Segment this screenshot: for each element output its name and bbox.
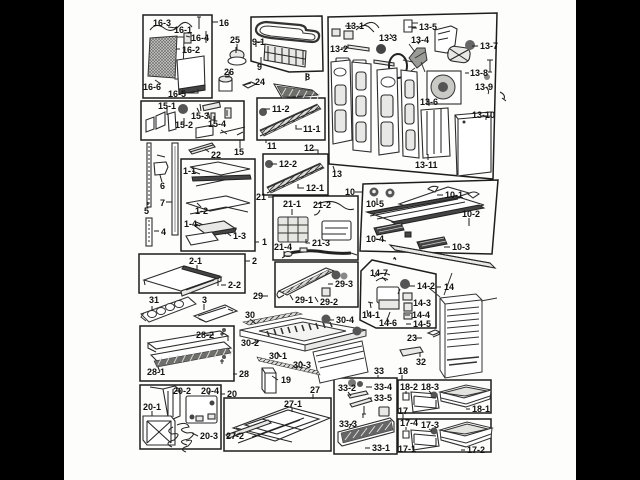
svg-text:20-4: 20-4 [201, 386, 219, 396]
svg-text:27-1: 27-1 [284, 399, 302, 409]
svg-text:19: 19 [281, 375, 291, 385]
svg-text:21-2: 21-2 [313, 200, 331, 210]
svg-text:13-2: 13-2 [330, 44, 348, 54]
svg-text:29-3: 29-3 [335, 279, 353, 289]
svg-text:22: 22 [211, 150, 221, 160]
svg-text:29-1: 29-1 [295, 295, 313, 305]
svg-text:1-4: 1-4 [184, 219, 197, 229]
svg-text:28-1: 28-1 [147, 367, 165, 377]
svg-text:12: 12 [304, 143, 314, 153]
svg-text:13-8: 13-8 [470, 68, 488, 78]
svg-text:33-2: 33-2 [338, 383, 356, 393]
svg-text:12-1: 12-1 [306, 183, 324, 193]
svg-text:5: 5 [144, 206, 149, 216]
svg-text:30-1: 30-1 [269, 351, 287, 361]
svg-text:13-1: 13-1 [346, 21, 364, 31]
svg-text:21: 21 [256, 192, 266, 202]
svg-text:1-3: 1-3 [233, 231, 246, 241]
svg-text:28: 28 [239, 369, 249, 379]
svg-text:33: 33 [374, 366, 384, 376]
svg-text:30: 30 [245, 310, 255, 320]
svg-text:14: 14 [444, 282, 454, 292]
svg-text:17-4: 17-4 [400, 418, 418, 428]
svg-text:21-4: 21-4 [274, 242, 292, 252]
svg-text:18-2: 18-2 [400, 382, 418, 392]
svg-text:1: 1 [262, 237, 267, 247]
svg-text:16-6: 16-6 [143, 82, 161, 92]
svg-text:29-2: 29-2 [320, 297, 338, 307]
svg-text:20-1: 20-1 [143, 402, 161, 412]
svg-text:18-3: 18-3 [421, 382, 439, 392]
svg-text:8: 8 [305, 72, 310, 82]
svg-text:10-3: 10-3 [452, 242, 470, 252]
svg-text:27-2: 27-2 [226, 431, 244, 441]
svg-text:15-4: 15-4 [208, 119, 226, 129]
svg-text:16: 16 [219, 18, 229, 28]
svg-text:17: 17 [398, 406, 408, 416]
svg-text:11-2: 11-2 [272, 104, 290, 114]
svg-text:16-2: 16-2 [182, 45, 200, 55]
svg-text:20-3: 20-3 [200, 431, 218, 441]
svg-text:15: 15 [234, 147, 244, 157]
svg-text:16-1: 16-1 [174, 25, 192, 35]
svg-text:21-3: 21-3 [312, 238, 330, 248]
svg-text:13-10: 13-10 [472, 110, 495, 120]
svg-text:15-3: 15-3 [191, 111, 209, 121]
svg-text:33-4: 33-4 [374, 382, 392, 392]
svg-text:24: 24 [255, 77, 265, 87]
svg-text:27: 27 [310, 385, 320, 395]
svg-text:30-2: 30-2 [241, 338, 259, 348]
svg-text:29: 29 [253, 291, 263, 301]
svg-text:18-1: 18-1 [472, 404, 490, 414]
svg-text:12-2: 12-2 [279, 159, 297, 169]
svg-text:13-6: 13-6 [420, 97, 438, 107]
svg-text:2: 2 [252, 256, 257, 266]
svg-text:20-2: 20-2 [173, 386, 191, 396]
svg-text:21-1: 21-1 [283, 199, 301, 209]
svg-text:15-1: 15-1 [158, 101, 176, 111]
svg-text:14-3: 14-3 [413, 298, 431, 308]
svg-text:4: 4 [161, 227, 166, 237]
svg-text:15-2: 15-2 [175, 120, 193, 130]
svg-text:13: 13 [332, 169, 342, 179]
svg-text:16-4: 16-4 [191, 33, 209, 43]
svg-text:11: 11 [267, 141, 277, 151]
svg-text:13-5: 13-5 [419, 22, 437, 32]
svg-text:7: 7 [160, 198, 165, 208]
svg-text:20: 20 [227, 389, 237, 399]
svg-text:30-4: 30-4 [336, 315, 354, 325]
svg-text:9: 9 [257, 62, 262, 72]
svg-text:14-5: 14-5 [413, 319, 431, 329]
svg-text:6: 6 [160, 181, 165, 191]
svg-text:16-3: 16-3 [153, 18, 171, 28]
svg-text:14-7: 14-7 [370, 268, 388, 278]
svg-text:13-7: 13-7 [480, 41, 498, 51]
svg-text:32: 32 [416, 357, 426, 367]
svg-text:10-1: 10-1 [445, 190, 463, 200]
svg-text:25: 25 [230, 35, 240, 45]
svg-text:14-1: 14-1 [362, 310, 380, 320]
svg-text:10-4: 10-4 [366, 234, 384, 244]
svg-text:17-2: 17-2 [467, 445, 485, 455]
svg-text:28-2: 28-2 [196, 330, 214, 340]
svg-text:26: 26 [224, 67, 234, 77]
svg-text:18: 18 [398, 366, 408, 376]
svg-text:2-1: 2-1 [189, 256, 202, 266]
svg-text:2-2: 2-2 [228, 280, 241, 290]
svg-text:10: 10 [345, 187, 355, 197]
svg-text:16-5: 16-5 [168, 89, 186, 99]
svg-text:17-3: 17-3 [421, 420, 439, 430]
svg-text:13-11: 13-11 [415, 160, 438, 170]
svg-text:30-3: 30-3 [293, 360, 311, 370]
svg-text:33-1: 33-1 [372, 443, 390, 453]
svg-text:9-1: 9-1 [252, 37, 265, 47]
svg-text:14-2: 14-2 [417, 281, 435, 291]
svg-text:3: 3 [202, 295, 207, 305]
svg-text:10-2: 10-2 [462, 209, 480, 219]
svg-text:1-2: 1-2 [195, 206, 208, 216]
svg-text:14-6: 14-6 [379, 318, 397, 328]
svg-text:1-1: 1-1 [183, 166, 196, 176]
svg-text:33-5: 33-5 [374, 393, 392, 403]
svg-text:33-3: 33-3 [339, 419, 357, 429]
svg-text:11-1: 11-1 [303, 124, 321, 134]
svg-text:31: 31 [149, 295, 159, 305]
svg-text:13-4: 13-4 [411, 35, 429, 45]
svg-text:17-1: 17-1 [398, 444, 416, 454]
svg-text:10-5: 10-5 [366, 199, 384, 209]
svg-text:13-9: 13-9 [475, 82, 493, 92]
svg-text:23: 23 [407, 333, 417, 343]
svg-text:13-3: 13-3 [379, 33, 397, 43]
